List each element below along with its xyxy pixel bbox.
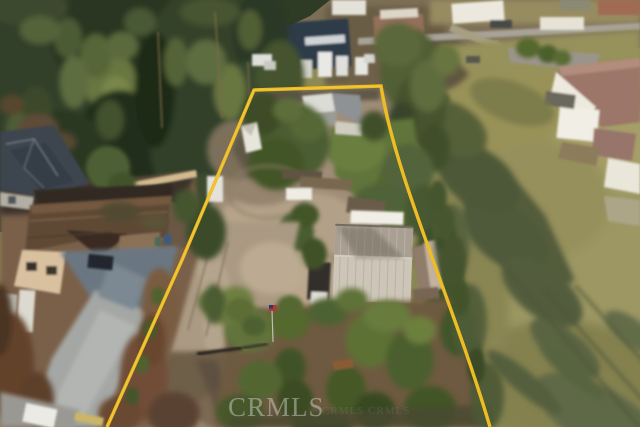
- svg-text:CRMLS CRMLS: CRMLS CRMLS: [322, 405, 410, 417]
- svg-text:CRMLS: CRMLS: [228, 392, 325, 422]
